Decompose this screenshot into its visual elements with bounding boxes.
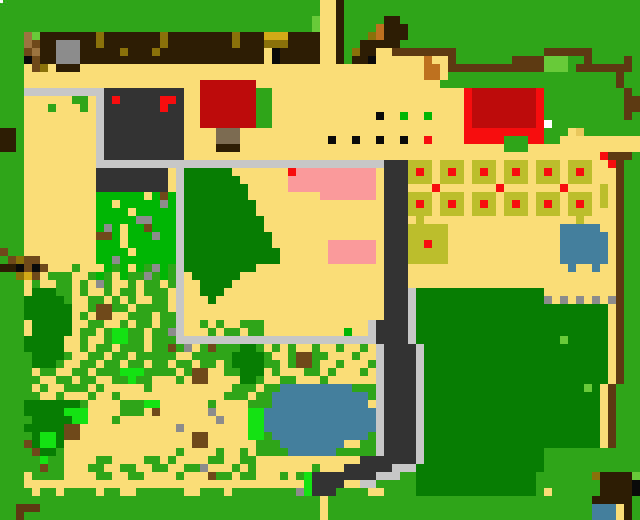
farm-map-canvas[interactable] [0, 0, 640, 520]
game-map-view [0, 0, 640, 520]
